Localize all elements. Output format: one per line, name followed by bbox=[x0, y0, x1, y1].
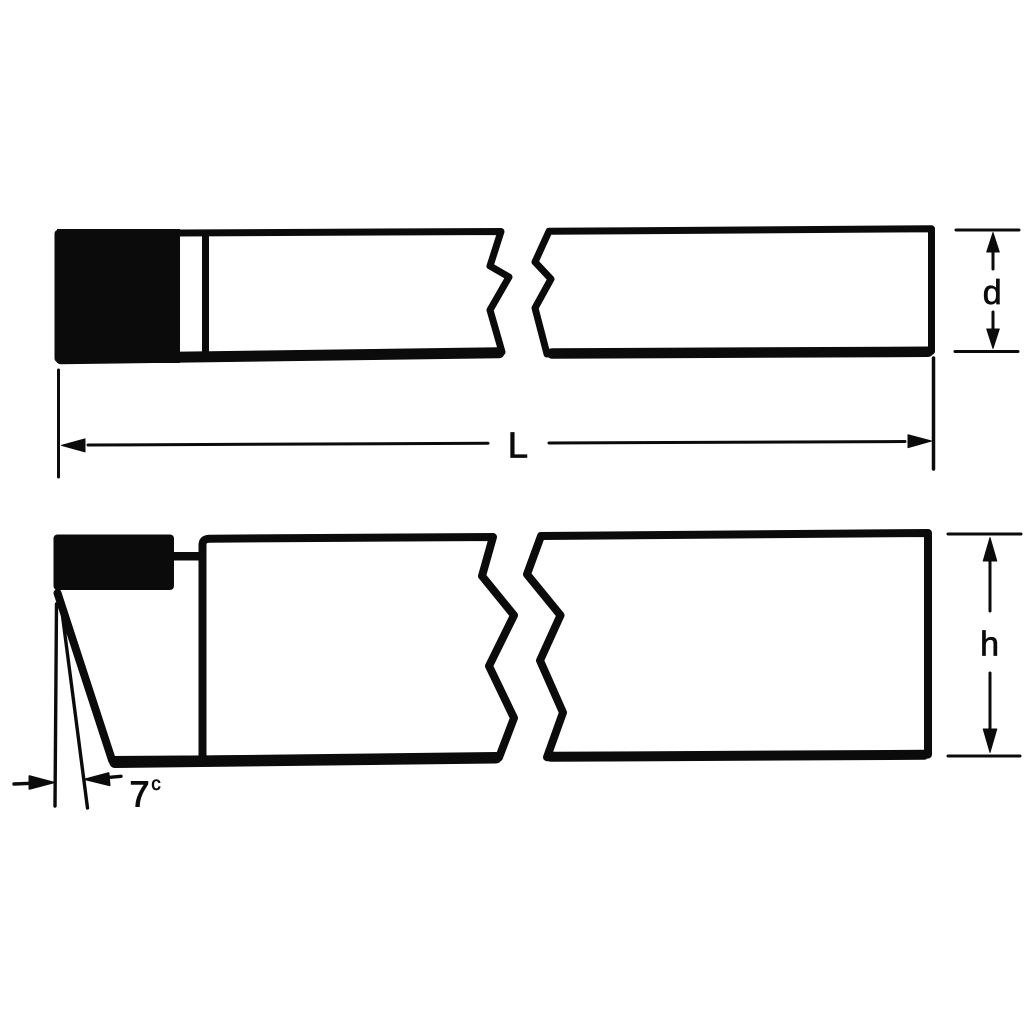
svg-text:L: L bbox=[508, 424, 528, 465]
svg-text:d: d bbox=[983, 274, 1002, 312]
svg-text:7: 7 bbox=[130, 773, 150, 814]
svg-text:h: h bbox=[980, 626, 999, 664]
svg-text:c: c bbox=[151, 774, 161, 795]
